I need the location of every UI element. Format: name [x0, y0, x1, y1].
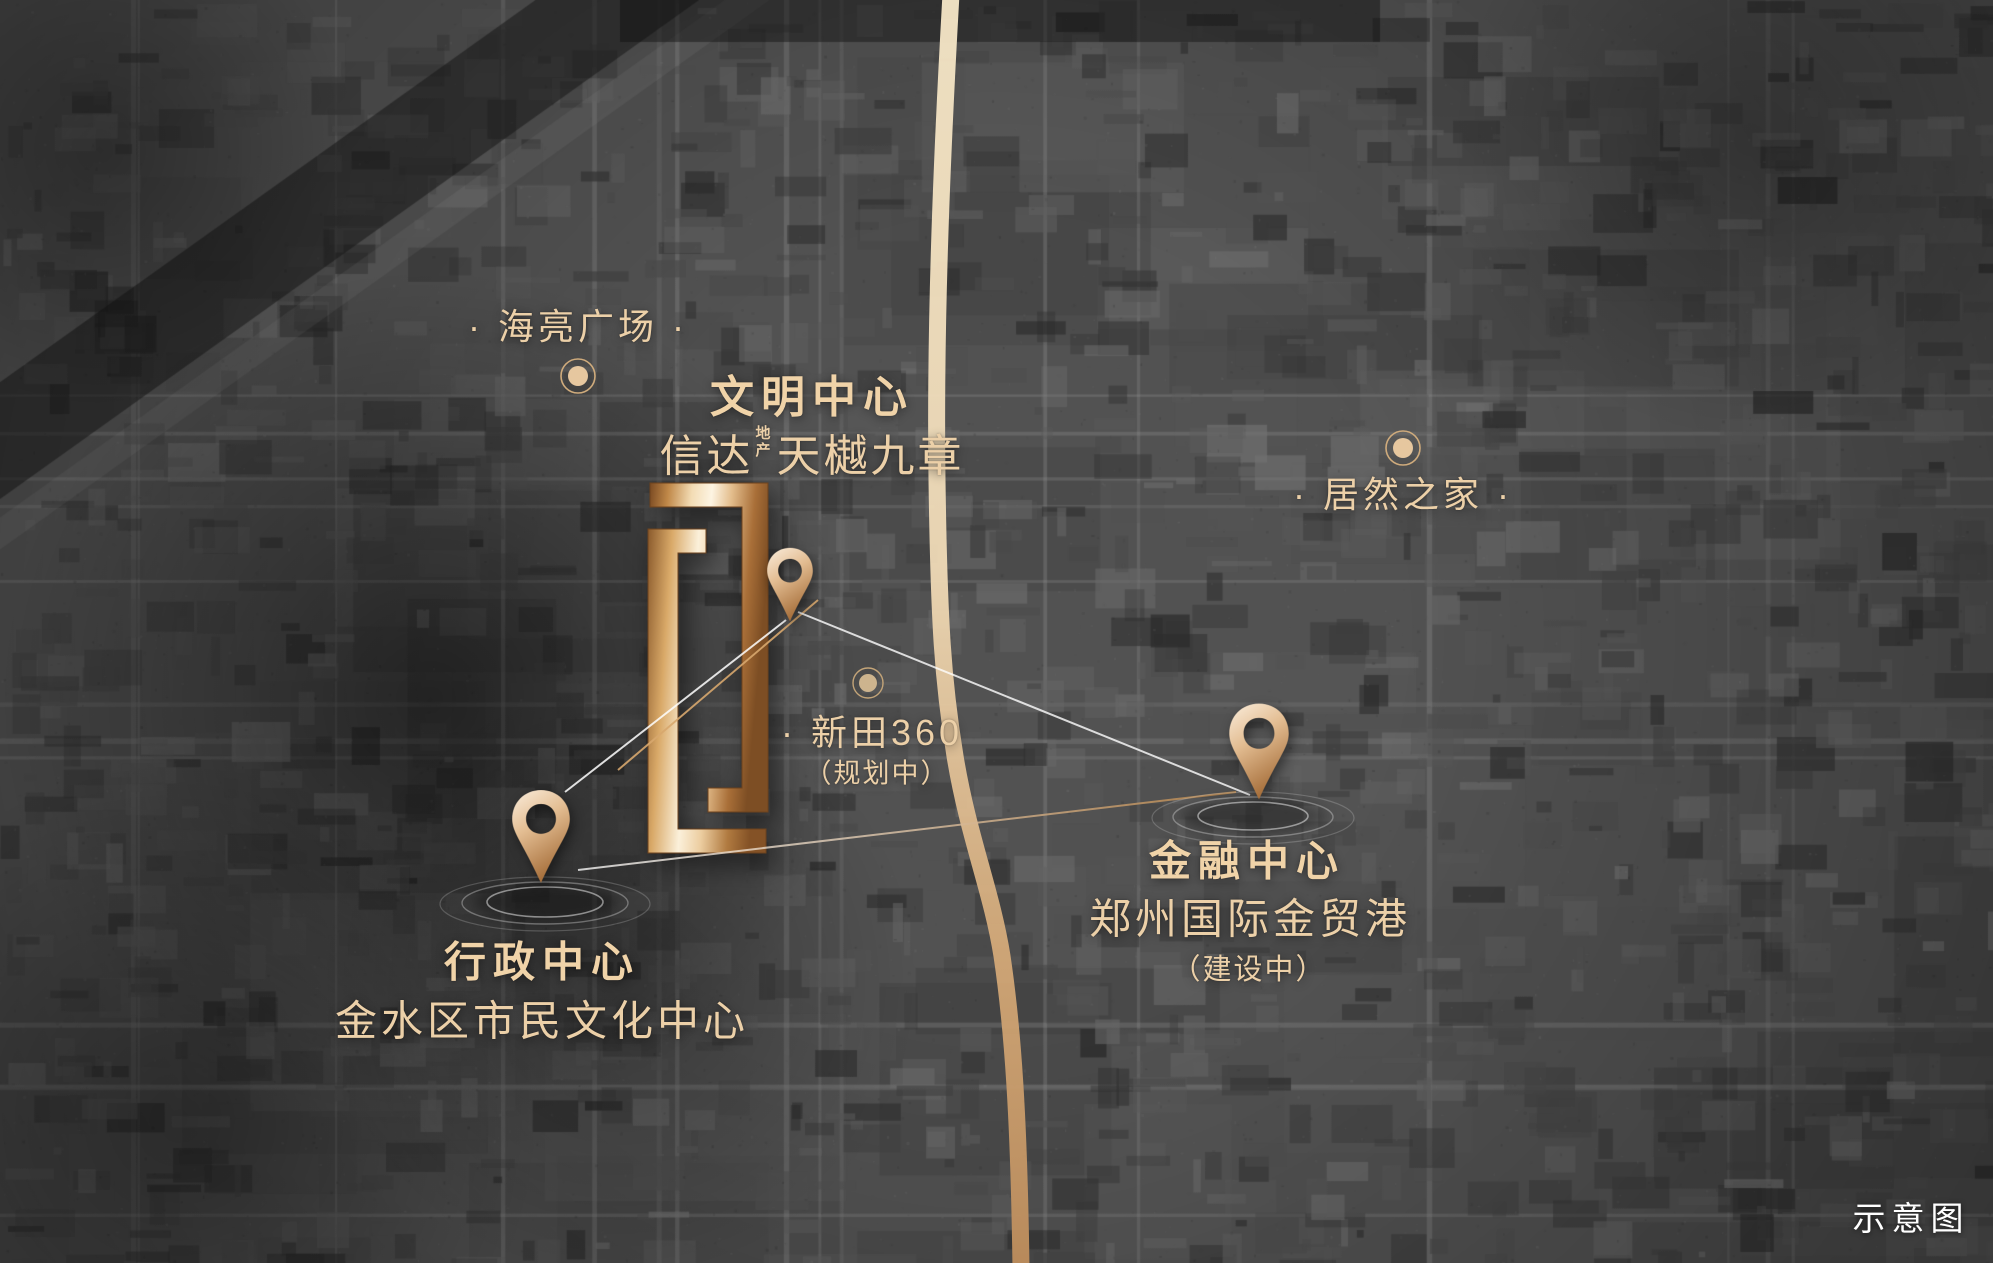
xintian-dot-icon [859, 674, 877, 692]
poi-label-xintian: · 新田360 [781, 704, 963, 756]
finance-center-title: 金融中心 [1149, 828, 1345, 889]
project-name-line: 信达 地 产 天樾九章 [659, 420, 964, 484]
hailiang-dot-icon [568, 366, 588, 386]
gold-road [937, 0, 1021, 1263]
brand-superscript: 地 产 [755, 426, 770, 459]
project-district-title: 文明中心 [710, 361, 914, 425]
schematic-note: 示意图 [1853, 1192, 1970, 1240]
finance-center-pin-icon [1229, 704, 1288, 800]
juran-dot-icon [1393, 438, 1413, 458]
finance-center-status: （建设中） [1171, 946, 1326, 988]
location-map: · 海亮广场 · 文明中心 信达 地 产 天樾九章 · 新田360 （规划中） … [0, 0, 1993, 1263]
poi-label-hailiang: · 海亮广场 · [468, 298, 688, 350]
finance-center-subtitle: 郑州国际金贸港 [1089, 886, 1411, 947]
poi-label-juran: · 居然之家 · [1293, 466, 1513, 518]
project-name: 天樾九章 [777, 420, 965, 484]
admin-center-subtitle: 金水区市民文化中心 [335, 988, 749, 1049]
admin-center-title: 行政中心 [444, 929, 640, 990]
brand-name: 信达 [659, 420, 753, 484]
poi-status-xintian: （规划中） [805, 752, 950, 791]
map-overlay-graphics [0, 0, 1993, 1263]
admin-center-pin-icon [512, 790, 570, 883]
project-logo [648, 483, 768, 853]
